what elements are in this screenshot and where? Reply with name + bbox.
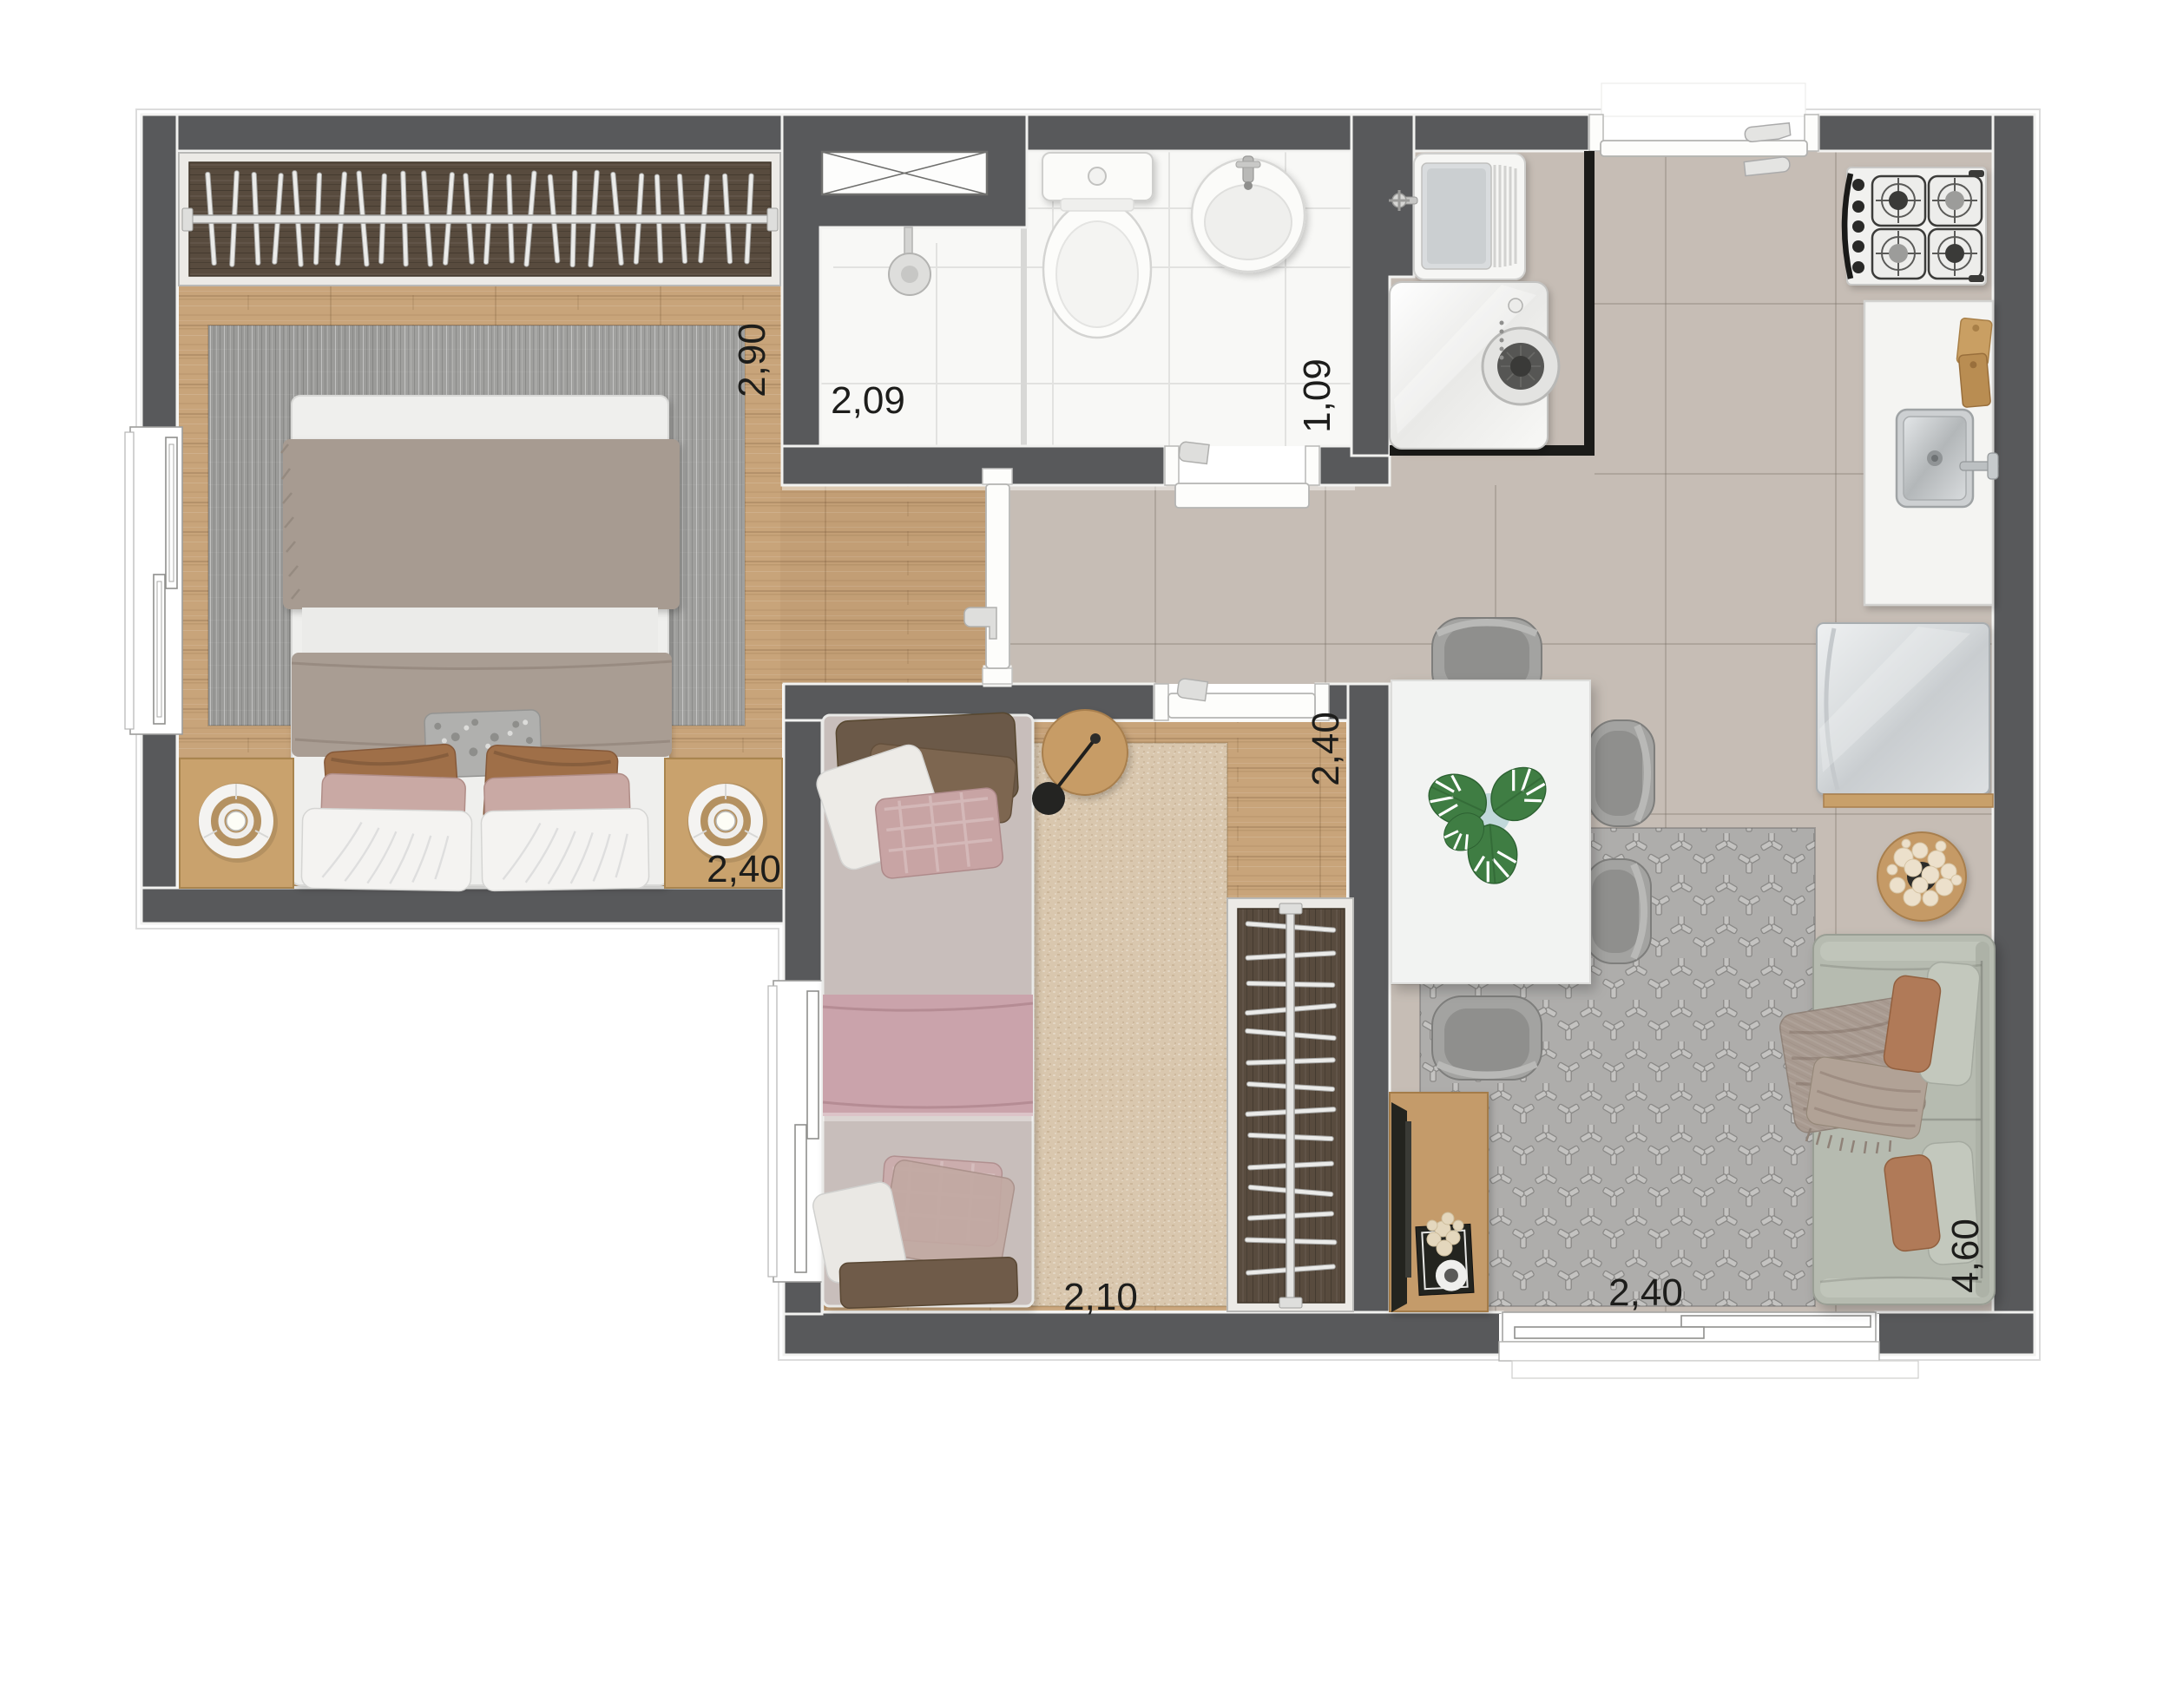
svg-text:4,60: 4,60 <box>1944 1219 1987 1293</box>
svg-text:2,10: 2,10 <box>1063 1276 1138 1318</box>
svg-text:2,40: 2,40 <box>1608 1271 1683 1314</box>
svg-text:1,09: 1,09 <box>1296 358 1338 433</box>
svg-text:2,40: 2,40 <box>707 848 781 890</box>
svg-text:2,90: 2,90 <box>731 323 773 397</box>
svg-text:2,09: 2,09 <box>831 379 905 422</box>
svg-text:2,40: 2,40 <box>1305 712 1347 786</box>
